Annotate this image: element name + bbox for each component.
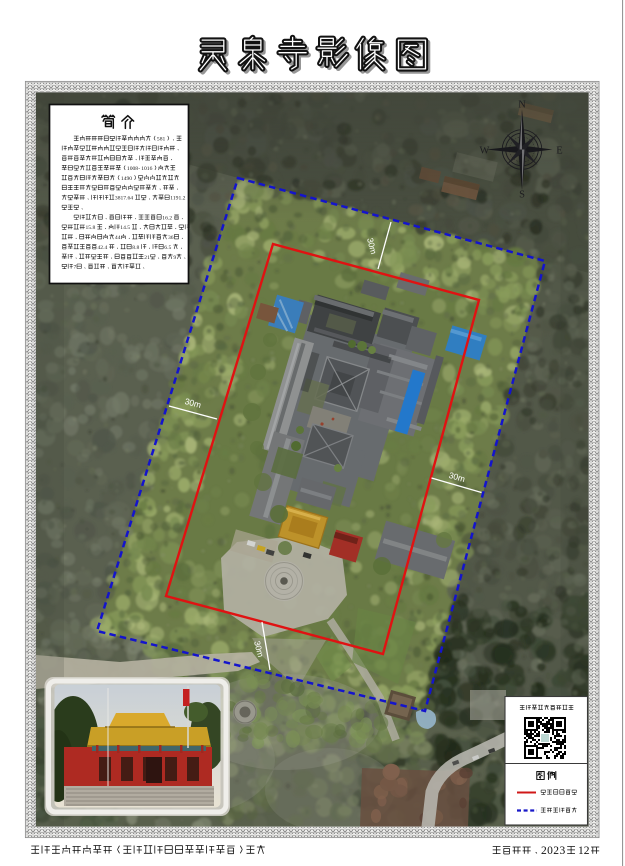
svg-text:S: S [519, 190, 525, 201]
svg-text:1490: 1490 [121, 176, 132, 182]
svg-text:36: 36 [168, 235, 174, 241]
svg-text:1191.2: 1191.2 [170, 196, 185, 202]
svg-text:42.4: 42.4 [98, 245, 108, 251]
svg-text:3817.64: 3817.64 [115, 196, 133, 202]
svg-text:-: - [138, 166, 140, 172]
svg-text:1016: 1016 [141, 166, 152, 172]
svg-text:14.5: 14.5 [120, 225, 130, 231]
svg-text:8.8: 8.8 [132, 245, 139, 251]
svg-text:581: 581 [157, 137, 166, 143]
svg-text:1008: 1008 [127, 166, 138, 172]
svg-text:7: 7 [74, 265, 77, 271]
svg-text:9: 9 [173, 255, 176, 261]
svg-text:16.2: 16.2 [162, 215, 172, 221]
svg-text:N: N [518, 100, 526, 111]
svg-text:2023: 2023 [541, 845, 566, 857]
svg-text:21: 21 [144, 255, 150, 261]
svg-text:W: W [480, 146, 490, 157]
svg-text:15.8: 15.8 [86, 225, 96, 231]
svg-text:12: 12 [578, 845, 590, 857]
svg-text:44: 44 [115, 235, 121, 241]
svg-text:E: E [556, 146, 562, 157]
svg-text:6.5: 6.5 [164, 245, 171, 251]
